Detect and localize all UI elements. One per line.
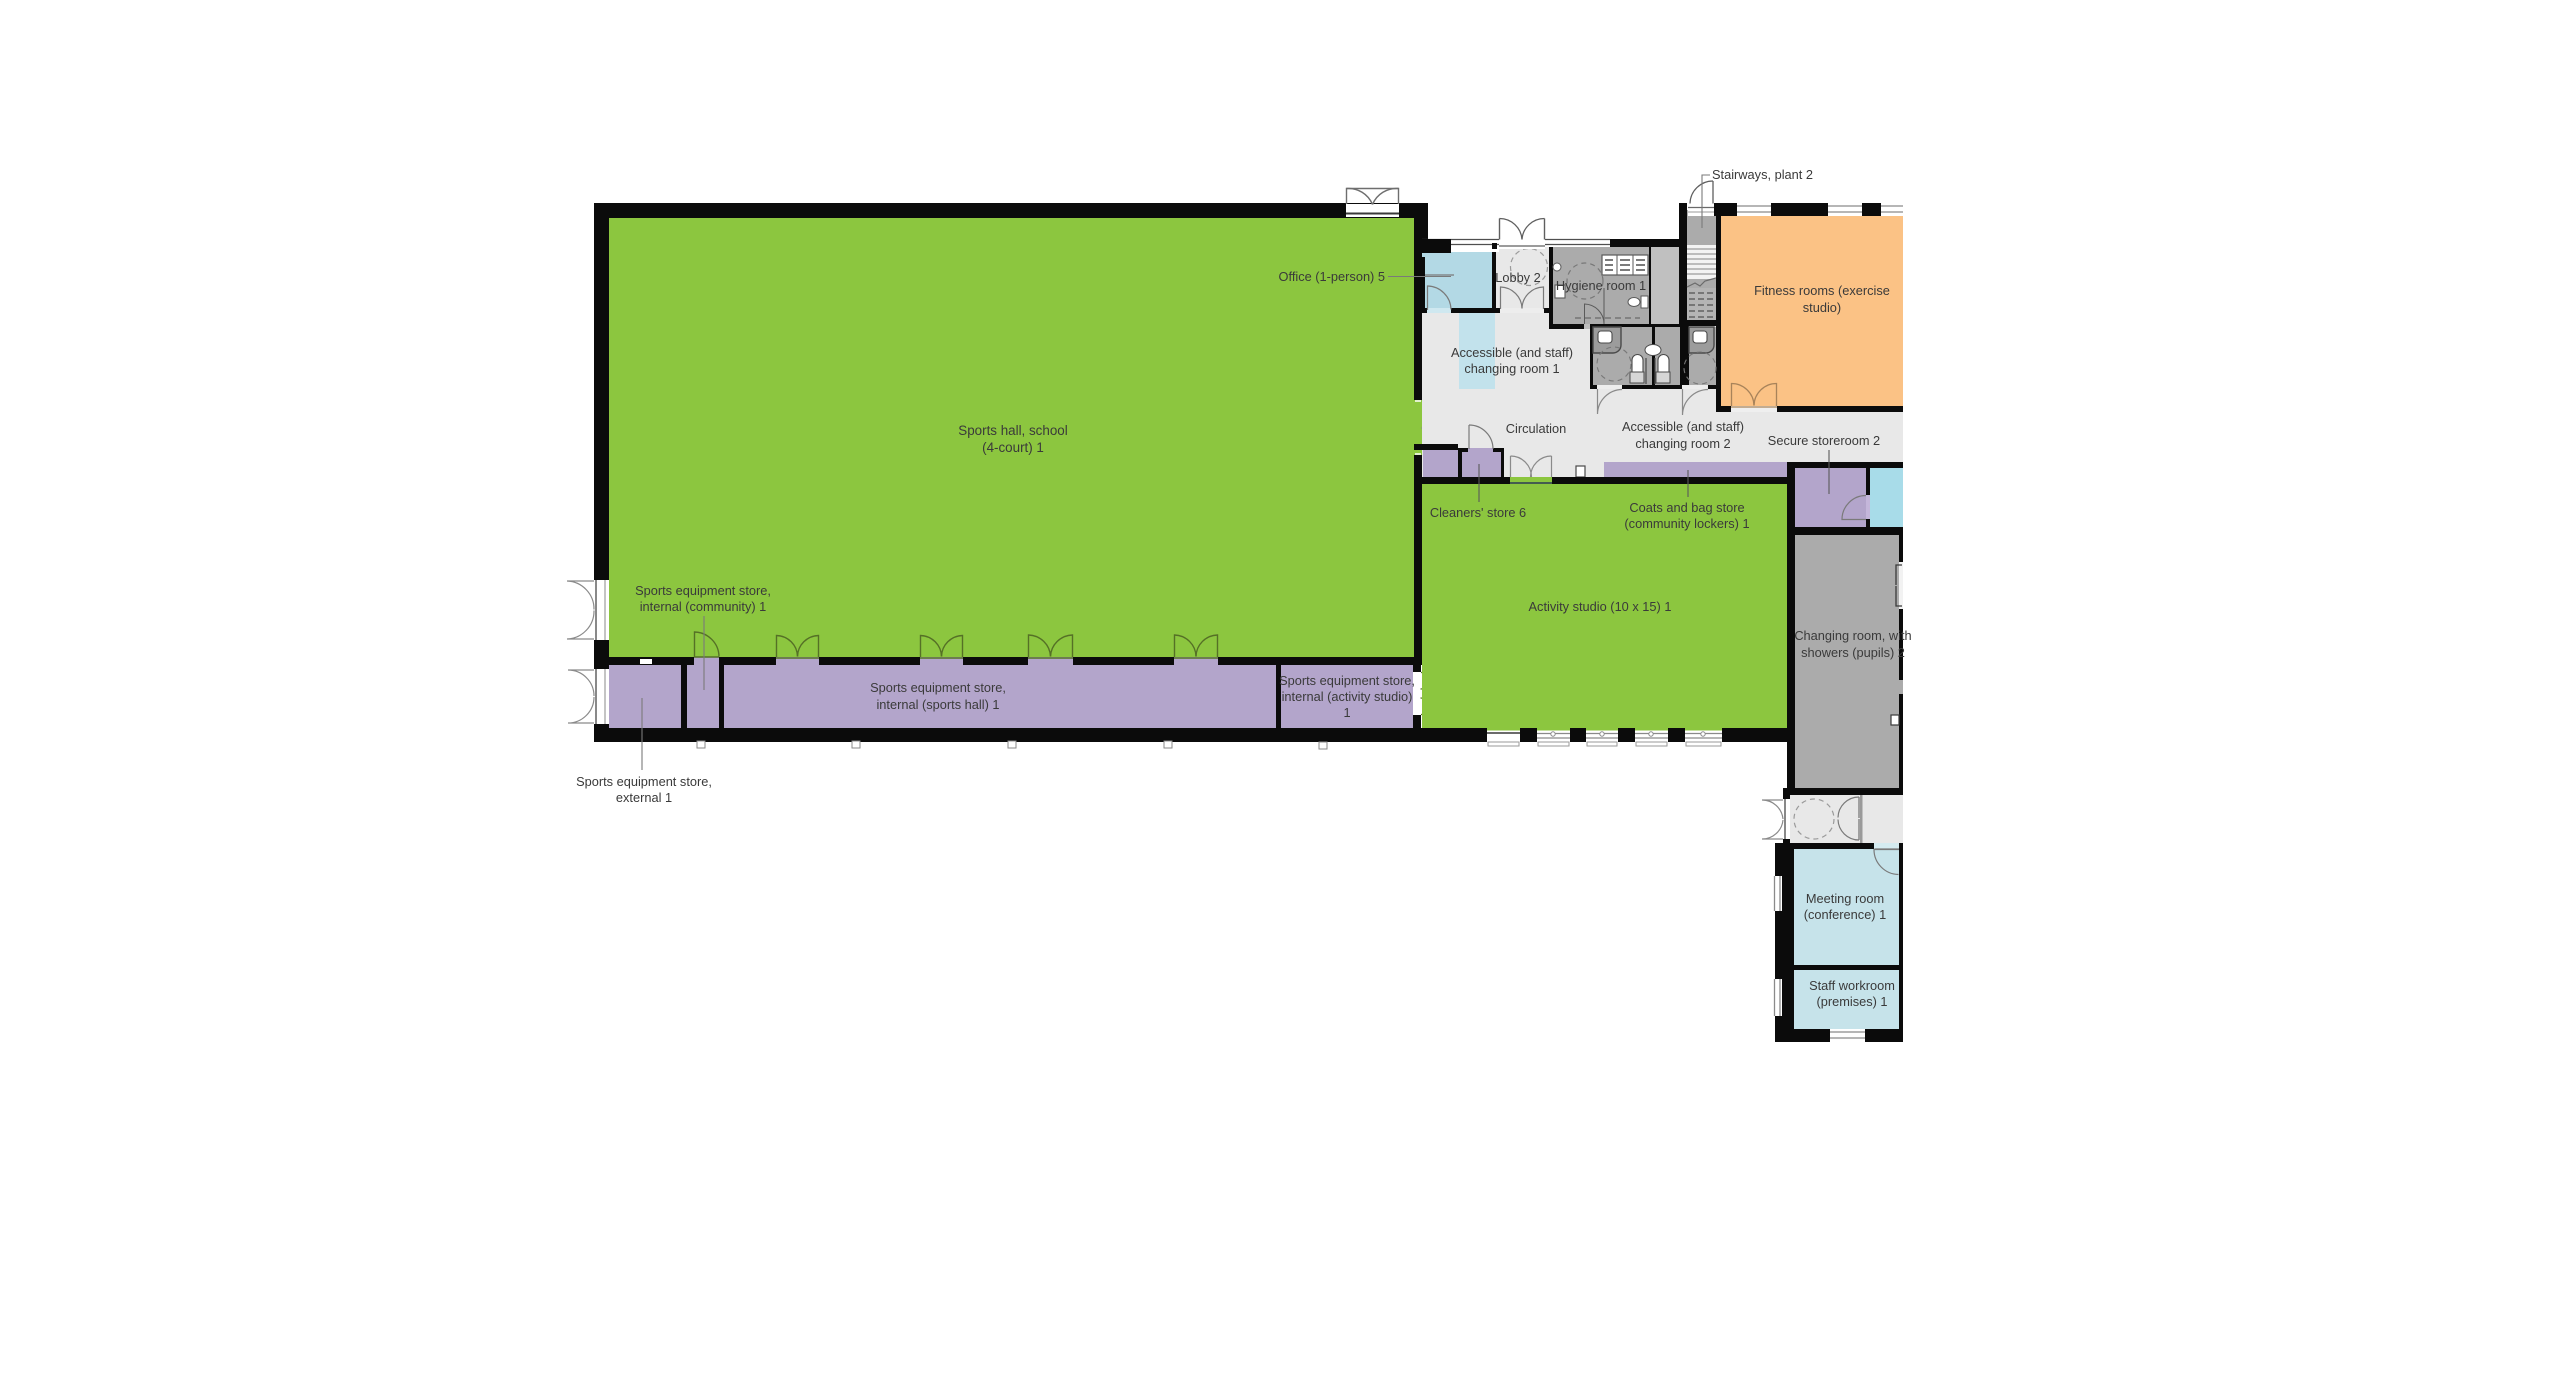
svg-text:showers (pupils) 2: showers (pupils) 2: [1801, 645, 1905, 660]
svg-text:changing room 1: changing room 1: [1464, 361, 1559, 376]
svg-text:Accessible (and staff): Accessible (and staff): [1622, 419, 1744, 434]
svg-text:Lobby 2: Lobby 2: [1495, 270, 1541, 285]
svg-text:Accessible (and staff): Accessible (and staff): [1451, 345, 1573, 360]
svg-text:Coats and bag store: Coats and bag store: [1629, 500, 1744, 515]
svg-text:Secure storeroom 2: Secure storeroom 2: [1768, 433, 1880, 448]
svg-text:1: 1: [1343, 705, 1350, 720]
svg-text:internal (activity studio): internal (activity studio): [1282, 689, 1413, 704]
svg-text:Sports equipment store,: Sports equipment store,: [576, 774, 712, 789]
svg-text:Activity studio (10 x 15) 1: Activity studio (10 x 15) 1: [1529, 599, 1672, 614]
svg-text:(community lockers) 1: (community lockers) 1: [1624, 516, 1749, 531]
svg-text:internal (sports hall) 1: internal (sports hall) 1: [876, 697, 999, 712]
svg-text:Staff workroom: Staff workroom: [1809, 978, 1895, 993]
svg-text:Changing room, with: Changing room, with: [1794, 628, 1911, 643]
svg-text:Cleaners' store 6: Cleaners' store 6: [1430, 505, 1526, 520]
svg-text:Circulation: Circulation: [1506, 421, 1566, 436]
svg-text:Fitness rooms (exercise: Fitness rooms (exercise: [1754, 283, 1890, 298]
svg-text:changing room 2: changing room 2: [1635, 436, 1730, 451]
svg-text:Sports equipment store,: Sports equipment store,: [1279, 673, 1415, 688]
svg-text:external 1: external 1: [616, 790, 672, 805]
svg-text:Stairways, plant 2: Stairways, plant 2: [1712, 167, 1813, 182]
svg-text:Sports equipment store,: Sports equipment store,: [870, 680, 1006, 695]
svg-text:Sports hall, school: Sports hall, school: [958, 423, 1067, 438]
svg-text:Meeting room: Meeting room: [1806, 891, 1884, 906]
svg-text:Office (1-person) 5: Office (1-person) 5: [1279, 269, 1385, 284]
svg-text:Sports equipment store,: Sports equipment store,: [635, 583, 771, 598]
svg-text:(conference) 1: (conference) 1: [1804, 907, 1887, 922]
svg-text:studio): studio): [1803, 300, 1841, 315]
svg-text:(4-court) 1: (4-court) 1: [982, 440, 1044, 455]
svg-text:Hygiene room 1: Hygiene room 1: [1556, 278, 1646, 293]
svg-text:(premises) 1: (premises) 1: [1816, 994, 1887, 1009]
svg-text:internal (community) 1: internal (community) 1: [640, 599, 767, 614]
